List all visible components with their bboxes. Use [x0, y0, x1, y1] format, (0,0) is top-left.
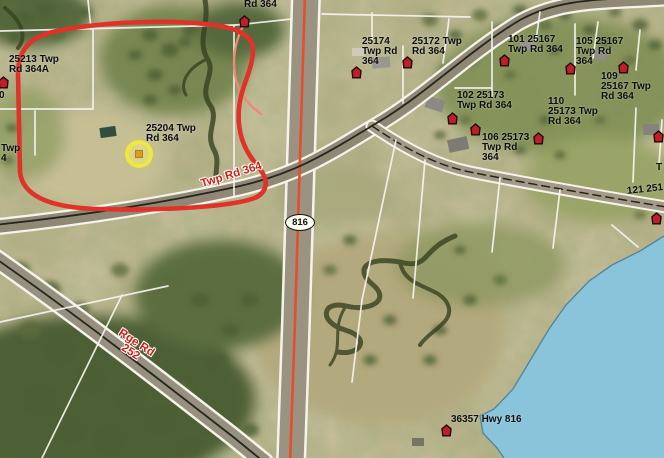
address-label-25213: 25213 TwpRd 364A: [9, 55, 59, 75]
address-point-marker-icon[interactable]: [653, 130, 664, 143]
address-label-101-25167: 101 25167Twp Rd 364: [508, 35, 563, 55]
address-label-right-partial-t: T: [656, 163, 662, 173]
address-label-110-25173: 11025173 TwpRd 364: [548, 97, 598, 127]
address-point-marker-icon[interactable]: [499, 54, 510, 67]
highway-816-shield: 816: [285, 214, 315, 231]
address-point-marker-icon[interactable]: [441, 424, 452, 437]
address-label-106-25173: 106 25173Twp Rd364: [482, 133, 529, 163]
address-label-105-25167: 105 25167Twp Rd364: [576, 37, 623, 67]
address-label-left-partial-twp: Twp4: [1, 144, 20, 164]
address-point-marker-icon[interactable]: [470, 123, 481, 136]
address-point-marker-icon[interactable]: [0, 76, 9, 89]
address-point-marker-icon[interactable]: [447, 112, 458, 125]
address-label-102-25173: 102 25173Twp Rd 364: [457, 91, 512, 111]
address-point-marker-icon[interactable]: [533, 132, 544, 145]
address-label-25204: 25204 TwpRd 364: [146, 124, 196, 144]
address-point-marker-icon[interactable]: [565, 62, 576, 75]
address-label-25172: 25172 TwpRd 364: [412, 37, 462, 57]
highlight-center-square: [135, 150, 143, 158]
address-point-marker-icon[interactable]: [651, 212, 662, 225]
address-label-left-partial-0: 0: [0, 91, 5, 101]
address-label-109-25167: 10925167 TwpRd 364: [601, 72, 651, 102]
highlighted-parcel-marker: [125, 140, 153, 168]
address-point-marker-icon[interactable]: [351, 66, 362, 79]
address-point-marker-icon[interactable]: [402, 56, 413, 69]
address-label-25174: 25174Twp Rd364: [362, 37, 397, 67]
map-canvas[interactable]: 816 Twp Rd 364 Rge Rd 252 25166 TwpRd 36…: [0, 0, 664, 458]
address-point-marker-icon[interactable]: [239, 15, 250, 28]
address-label-36357: 36357 Hwy 816: [451, 415, 522, 425]
address-label-25166: 25166 TwpRd 364: [244, 0, 294, 10]
